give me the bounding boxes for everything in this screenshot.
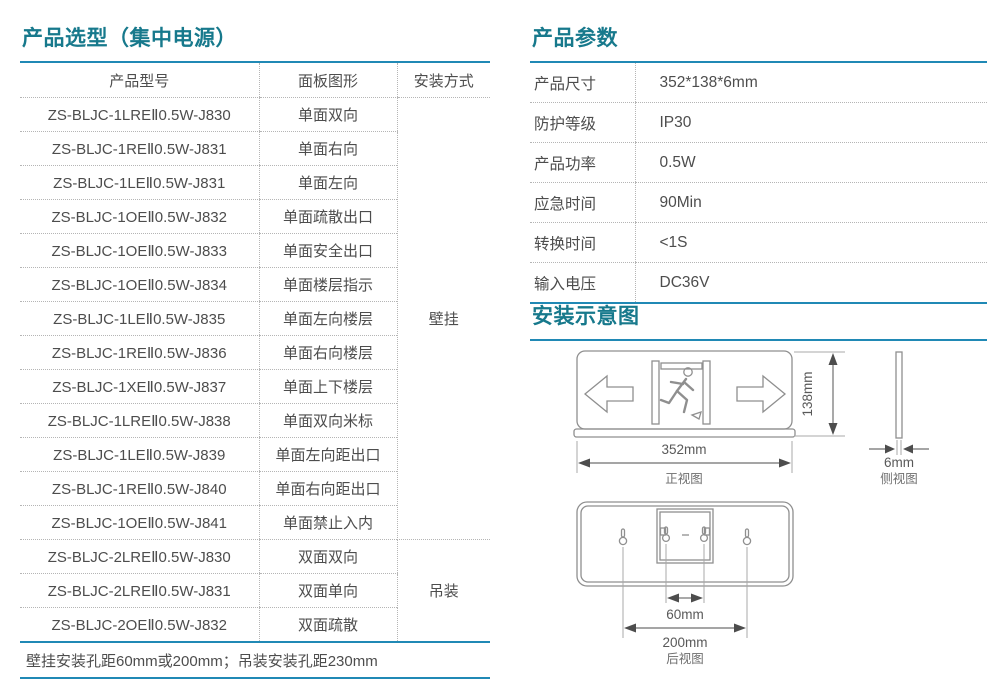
width-dimension-label: 352mm [661,442,706,457]
side-view-caption: 侧视图 [880,471,918,486]
mount-cell-ceiling: 吊装 [397,540,490,643]
front-view-drawing: 138mm 352mm 正视图 [574,351,845,486]
panel-cell: 单面右向 [259,132,397,166]
rear-panel-outer [577,502,793,586]
mounting-footnote: 壁挂安装孔距60mm或200mm；吊装安装孔距230mm [20,642,490,678]
table-row: ZS-BLJC-1LREⅡ0.5W-J830 单面双向 壁挂 [20,98,490,132]
keyhole-icon [619,529,626,545]
front-height-dimension: 138mm [794,352,845,436]
panel-cell: 单面双向 [259,98,397,132]
panel-cell: 单面上下楼层 [259,370,397,404]
model-cell: ZS-BLJC-1OEⅡ0.5W-J841 [20,506,259,540]
installation-diagram: 138mm 352mm 正视图 6mm 侧视图 [530,340,994,687]
installation-section-header: 安装示意图 [530,300,987,341]
product-spec-page: { "colors": { "accent_teal": "#17798C", … [0,0,994,687]
rear-view-drawing: 60mm 200mm 后视图 [577,502,793,666]
col-header-model: 产品型号 [20,62,259,98]
param-row: 防护等级 IP30 [530,103,987,143]
param-label: 产品功率 [530,143,635,183]
side-profile [896,352,902,438]
param-value: 0.5W [635,143,987,183]
rear-small-pitch-dimension: 60mm [666,544,704,622]
param-value: IP30 [635,103,987,143]
rear-panel-inner [581,506,789,582]
selection-table: 产品型号 面板图形 安装方式 ZS-BLJC-1LREⅡ0.5W-J830 单面… [20,61,490,679]
param-value: DC36V [635,263,987,304]
model-cell: ZS-BLJC-1OEⅡ0.5W-J832 [20,200,259,234]
front-view-caption: 正视图 [665,471,703,486]
side-view-drawing: 6mm 侧视图 [869,352,929,486]
param-value: 90Min [635,183,987,223]
panel-cell: 单面禁止入内 [259,506,397,540]
panel-cell: 单面安全出口 [259,234,397,268]
small-pitch-label: 60mm [666,607,704,622]
model-cell: ZS-BLJC-2OEⅡ0.5W-J832 [20,608,259,643]
product-selection-section: 产品选型（集中电源） 产品型号 面板图形 安装方式 ZS-BLJC-1LREⅡ0… [20,22,490,679]
panel-cell: 双面双向 [259,540,397,574]
param-label: 转换时间 [530,223,635,263]
param-label: 应急时间 [530,183,635,223]
model-cell: ZS-BLJC-2LREⅡ0.5W-J830 [20,540,259,574]
col-header-mount: 安装方式 [397,62,490,98]
parameters-table: 产品尺寸 352*138*6mm 防护等级 IP30 产品功率 0.5W 应急时… [530,61,987,304]
param-row: 转换时间 <1S [530,223,987,263]
installation-title: 安装示意图 [532,300,987,330]
left-arrow-icon [585,376,633,412]
model-cell: ZS-BLJC-1LREⅡ0.5W-J838 [20,404,259,438]
panel-cell: 单面左向楼层 [259,302,397,336]
param-row: 输入电压 DC36V [530,263,987,304]
panel-cell: 双面单向 [259,574,397,608]
front-width-dimension: 352mm 正视图 [577,441,792,486]
param-label: 输入电压 [530,263,635,304]
model-cell: ZS-BLJC-1LREⅡ0.5W-J830 [20,98,259,132]
sign-base-strip [574,429,795,437]
panel-cell: 单面右向楼层 [259,336,397,370]
param-label: 产品尺寸 [530,62,635,103]
keyhole-icon [743,529,750,545]
panel-cell: 单面楼层指示 [259,268,397,302]
junction-box [657,509,713,563]
model-cell: ZS-BLJC-1REⅡ0.5W-J836 [20,336,259,370]
panel-cell: 单面右向距出口 [259,472,397,506]
panel-cell: 双面疏散 [259,608,397,643]
model-cell: ZS-BLJC-1REⅡ0.5W-J840 [20,472,259,506]
model-cell: ZS-BLJC-1LEⅡ0.5W-J835 [20,302,259,336]
right-arrow-icon [737,376,785,412]
rear-view-caption: 后视图 [666,651,704,666]
panel-cell: 单面左向 [259,166,397,200]
side-thickness-dimension: 6mm 侧视图 [869,445,929,487]
model-cell: ZS-BLJC-1XEⅡ0.5W-J837 [20,370,259,404]
height-dimension-label: 138mm [800,371,815,416]
model-cell: ZS-BLJC-1OEⅡ0.5W-J834 [20,268,259,302]
selection-title: 产品选型（集中电源） [22,22,490,52]
footnote-row: 壁挂安装孔距60mm或200mm；吊装安装孔距230mm [20,642,490,678]
running-man-icon [652,361,710,424]
table-row: ZS-BLJC-2LREⅡ0.5W-J830 双面双向 吊装 [20,540,490,574]
panel-cell: 单面疏散出口 [259,200,397,234]
param-row: 产品尺寸 352*138*6mm [530,62,987,103]
param-label: 防护等级 [530,103,635,143]
parameters-title: 产品参数 [532,22,987,52]
param-row: 应急时间 90Min [530,183,987,223]
param-row: 产品功率 0.5W [530,143,987,183]
model-cell: ZS-BLJC-1LEⅡ0.5W-J839 [20,438,259,472]
large-pitch-label: 200mm [662,635,707,650]
model-cell: ZS-BLJC-2LREⅡ0.5W-J831 [20,574,259,608]
param-value: 352*138*6mm [635,62,987,103]
thickness-dimension-label: 6mm [884,455,914,470]
model-cell: ZS-BLJC-1LEⅡ0.5W-J831 [20,166,259,200]
product-parameters-section: 产品参数 产品尺寸 352*138*6mm 防护等级 IP30 产品功率 0.5… [530,22,987,304]
mount-cell-wall: 壁挂 [397,98,490,540]
panel-cell: 单面左向距出口 [259,438,397,472]
model-cell: ZS-BLJC-1REⅡ0.5W-J831 [20,132,259,166]
param-value: <1S [635,223,987,263]
panel-cell: 单面双向米标 [259,404,397,438]
col-header-panel: 面板图形 [259,62,397,98]
model-cell: ZS-BLJC-1OEⅡ0.5W-J833 [20,234,259,268]
selection-header-row: 产品型号 面板图形 安装方式 [20,62,490,98]
